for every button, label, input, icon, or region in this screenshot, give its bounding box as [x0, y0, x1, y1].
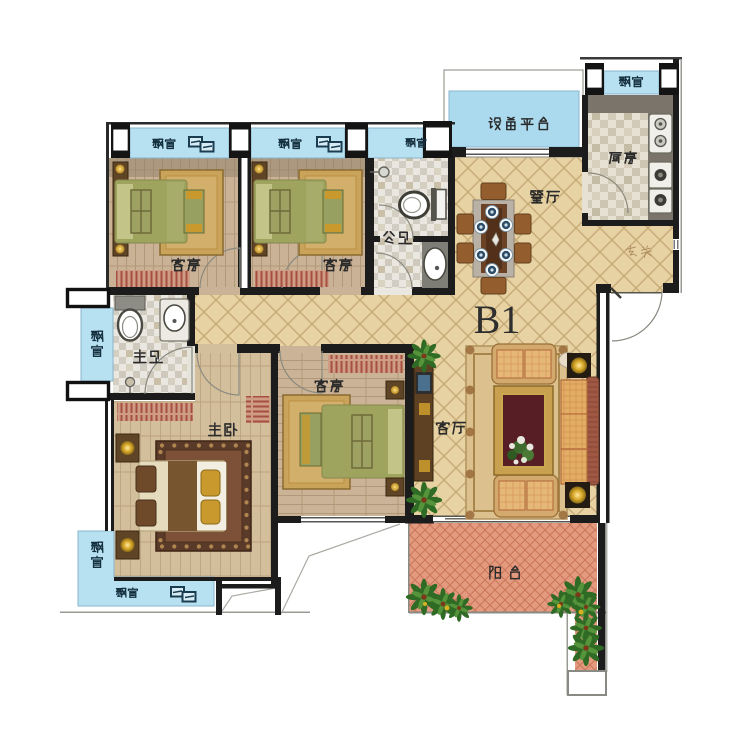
svg-text:B1: B1 [474, 297, 521, 342]
